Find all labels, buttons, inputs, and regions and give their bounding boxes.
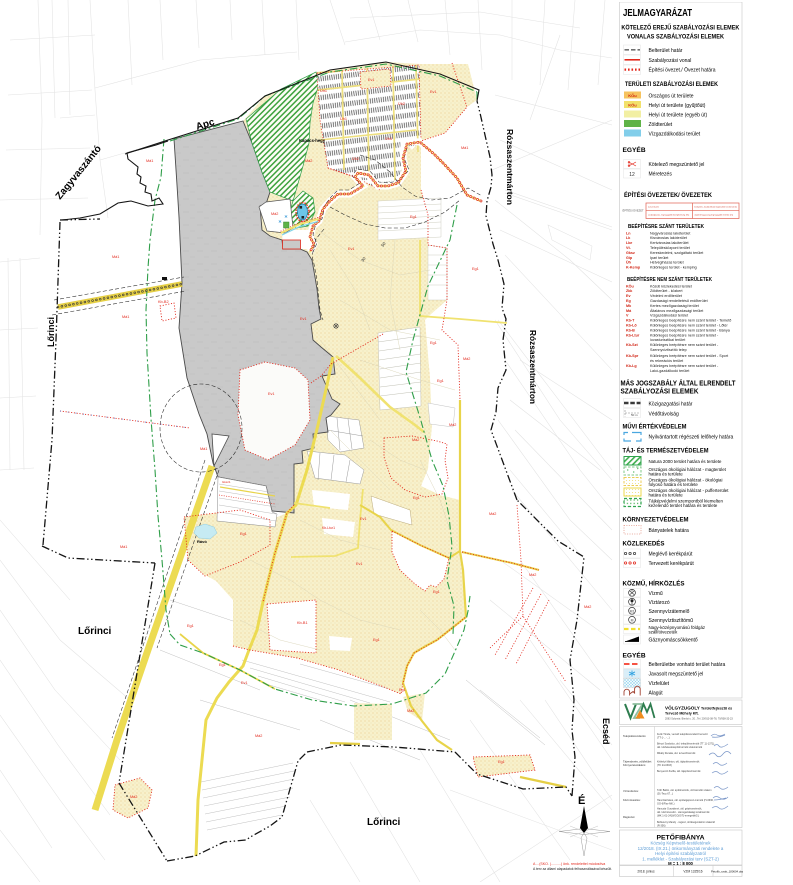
svg-text:Ln: Ln: [626, 231, 631, 235]
svg-text:TERÜLETI SZABÁLYOZÁSI ELEMEK: TERÜLETI SZABÁLYOZÁSI ELEMEK: [625, 81, 719, 88]
svg-text:Má2: Má2: [489, 512, 496, 516]
svg-text:Rózsaszentmárton: Rózsaszentmárton: [505, 129, 515, 205]
svg-text:Tervezett kerékpárút: Tervezett kerékpárút: [649, 561, 695, 567]
svg-text:2083 Solymár, Bimbó u. 20., Te: 2083 Solymár, Bimbó u. 20., Tel: 20/913-…: [665, 718, 733, 721]
svg-text:Má2: Má2: [412, 438, 419, 442]
svg-text:Méretezés: Méretezés: [649, 172, 673, 178]
svg-text:Általános mezőgazdasági terüle: Általános mezőgazdasági terület: [650, 309, 703, 313]
svg-text:Kb-Szt: Kb-Szt: [626, 343, 638, 347]
svg-text:Lőrinci: Lőrinci: [78, 626, 112, 637]
svg-text:Má2: Má2: [529, 573, 536, 577]
svg-text:Kereskedelmi, szolgáltató terü: Kereskedelmi, szolgáltató terület: [650, 251, 703, 255]
svg-text:M = 1 : 8 000: M = 1 : 8 000: [668, 861, 693, 866]
svg-text:Különleges beépítésre nem szán: Különleges beépítésre nem szánt terület …: [650, 319, 731, 323]
svg-text:Ipari terület: Ipari terület: [650, 256, 668, 260]
svg-text:Má1: Má1: [146, 159, 153, 163]
svg-text:Ev1: Ev1: [368, 78, 375, 82]
svg-text:Országos út területe: Országos út területe: [649, 93, 694, 99]
svg-text:Ecséd: Ecséd: [601, 718, 611, 745]
svg-text:határa és területe: határa és területe: [649, 492, 684, 497]
svg-text:Benyeczó Zsófia, okl. tájépíté: Benyeczó Zsófia, okl. tájépítészmérnök: [657, 770, 701, 773]
svg-text:Különleges beépítésre nem szán: Különleges beépítésre nem szánt terület …: [650, 343, 719, 347]
svg-text:Gksz: Gksz: [626, 251, 635, 255]
svg-text:BEÉPÍTÉSRE SZÁNT TERÜLETEK: BEÉPÍTÉSRE SZÁNT TERÜLETEK: [628, 222, 704, 230]
svg-text:Kb-B1: Kb-B1: [297, 621, 308, 625]
svg-text:Üh2: Üh2: [398, 102, 405, 106]
svg-text:JELMAGYARÁZAT: JELMAGYARÁZAT: [623, 6, 692, 19]
svg-text:KÖu: KÖu: [626, 283, 635, 288]
svg-text:EGYÉB: EGYÉB: [623, 145, 646, 154]
svg-text:Hétvégiházas terület: Hétvégiházas terület: [650, 261, 684, 265]
svg-text:Eg1: Eg1: [399, 688, 406, 692]
svg-text:Kertes mezőgazdasági terület: Kertes mezőgazdasági terület: [650, 304, 699, 308]
svg-text:Különleges terület - kemping: Különleges terület - kemping: [650, 266, 697, 270]
svg-text:Településközpont terület: Településközpont terület: [650, 246, 690, 250]
svg-text:KÖZMŰ, HÍRKÖZLÉS: KÖZMŰ, HÍRKÖZLÉS: [623, 580, 685, 588]
svg-text:2018. június: 2018. június: [637, 870, 655, 874]
svg-text:Különleges beépítésre nem szán: Különleges beépítésre nem szánt terület …: [650, 364, 719, 368]
svg-text:Kb-T: Kb-T: [626, 319, 635, 323]
svg-text:Belterületbe vonható terület h: Belterületbe vonható terület határa: [649, 662, 726, 668]
svg-text:Településrendezés:: Településrendezés:: [623, 734, 646, 738]
svg-text:Eg1: Eg1: [410, 215, 417, 219]
svg-text:Víztározó: Víztározó: [649, 600, 670, 606]
svg-text:Ev1: Ev1: [300, 317, 307, 321]
svg-text:Védelmi erdőterület: Védelmi erdőterület: [650, 294, 682, 298]
svg-text:(MK 1-01-2418/GO(O/T)-energeti: (MK 1-01-2418/GO(O/T)-energetikiG.): [657, 814, 699, 817]
svg-text:szabályozás, legnagyobb beépít: szabályozás, legnagyobb beépítettség (%): [648, 214, 689, 217]
svg-text:BEÉPÍTÉSRE NEM SZÁNT TERÜLETEK: BEÉPÍTÉSRE NEM SZÁNT TERÜLETEK: [627, 275, 712, 283]
svg-text:Vízrendezés:: Vízrendezés:: [623, 789, 639, 793]
svg-text:KÖTELEZŐ EREJŰ SZABÁLYOZÁSI EL: KÖTELEZŐ EREJŰ SZABÁLYOZÁSI ELEMEK: [621, 25, 740, 32]
svg-text:Üh: Üh: [626, 260, 632, 265]
svg-text:Közigazgatási határ: Közigazgatási határ: [649, 401, 693, 407]
svg-text:Nagyvárosias lakóterület: Nagyvárosias lakóterület: [650, 231, 690, 235]
svg-text:Eg1: Eg1: [413, 496, 420, 500]
svg-text:Különleges beépítésre nem szán: Különleges beépítésre nem szánt terület …: [650, 333, 719, 337]
svg-text:Zöldterület - közkert: Zöldterület - közkert: [650, 289, 683, 293]
svg-text:Kapacs-hegy: Kapacs-hegy: [299, 138, 326, 143]
svg-text:Kb-Lg: Kb-Lg: [626, 364, 637, 368]
svg-text:Kötelező megszüntető jel: Kötelező megszüntető jel: [649, 162, 705, 168]
svg-text:Eg1: Eg1: [219, 663, 226, 667]
svg-text:Tájrendezés, zöldfelület: Tájrendezés, zöldfelület: [623, 760, 652, 764]
svg-text:épületmagasság legnagyobb érté: épületmagasság legnagyobb értéke (m): [695, 214, 734, 217]
svg-text:övezeti jele: övezeti jele: [648, 206, 660, 209]
svg-text:Üh2: Üh2: [352, 157, 359, 161]
svg-text:Petofib_szab_180604.dwg: Petofib_szab_180604.dwg: [711, 870, 743, 874]
svg-text:Eg1: Eg1: [433, 590, 440, 594]
svg-text:Ev1: Ev1: [356, 562, 363, 566]
svg-text:GO-6/Flsz-MK.): GO-6/Flsz-MK.): [657, 802, 675, 805]
svg-text:Üh3: Üh3: [385, 137, 392, 141]
svg-text:Helyi út területe (egyéb út): Helyi út területe (egyéb út): [649, 112, 708, 118]
svg-text:12/2018. (IX.21.) önkormányzat: 12/2018. (IX.21.) önkormányzati rendelet…: [638, 846, 724, 851]
svg-text:Lőrinci: Lőrinci: [367, 817, 401, 828]
svg-text:Má1: Má1: [122, 315, 129, 319]
svg-text:VZM 1325/16: VZM 1325/16: [683, 870, 702, 874]
svg-text:határa és területe: határa és területe: [649, 471, 684, 476]
svg-text:M1: M1: [630, 609, 635, 613]
svg-text:12: 12: [629, 172, 635, 178]
svg-text:Má1: Má1: [120, 545, 127, 549]
svg-text:Eg1: Eg1: [187, 624, 194, 628]
svg-text:Ev1: Ev1: [241, 681, 248, 685]
svg-text:Alagút: Alagút: [649, 691, 664, 697]
svg-text:Natura 2000 terület határa és: Natura 2000 terület határa és területe: [649, 459, 723, 464]
svg-text:Szennyvíztisztító telep: Szennyvíztisztító telep: [650, 348, 687, 352]
svg-text:Helyi út területe (gyűjtőút): Helyi út területe (gyűjtőút): [649, 103, 706, 109]
svg-text:Má1: Má1: [112, 255, 119, 259]
svg-text:Vízmű: Vízmű: [649, 591, 663, 597]
svg-text:Eg1: Eg1: [373, 638, 380, 642]
svg-text:Kertvárosias lakóterület: Kertvárosias lakóterület: [650, 241, 689, 245]
svg-text:Üh1: Üh1: [320, 89, 327, 93]
svg-text:É: É: [578, 794, 585, 807]
svg-text:beépítés, kialakítható legkise: beépítés, kialakítható legkisebb terület…: [695, 206, 738, 209]
svg-text:VONALAS SZABÁLYOZÁSI ELEMEK: VONALAS SZABÁLYOZÁSI ELEMEK: [627, 34, 725, 41]
svg-text:Má2: Má2: [407, 709, 414, 713]
svg-text:Helyi építési szabályzatról: Helyi építési szabályzatról: [655, 851, 706, 856]
svg-text:Építési övezet./ Övezet határa: Építési övezet./ Övezet határa: [649, 67, 716, 74]
svg-text:MŰVI ÉRTÉKVÉDELEM: MŰVI ÉRTÉKVÉDELEM: [623, 423, 687, 431]
svg-text:Javasolt megszüntető jel: Javasolt megszüntető jel: [649, 672, 704, 678]
svg-text:Kb-Ltur1: Kb-Ltur1: [322, 526, 335, 530]
svg-text:szállítóvezeték: szállítóvezeték: [649, 630, 679, 635]
svg-text:TÁJ- ÉS TERMÉSZETVÉDELEM: TÁJ- ÉS TERMÉSZETVÉDELEM: [623, 447, 709, 455]
svg-text:Kb-B: Kb-B: [626, 328, 635, 332]
svg-text:KÖu: KÖu: [628, 103, 637, 108]
svg-text:Zöldterület: Zöldterület: [649, 122, 673, 128]
svg-text:Eg1: Eg1: [430, 341, 437, 345]
svg-text:Kisvárosias lakóterület: Kisvárosias lakóterület: [650, 236, 687, 240]
svg-text:(01-Tecc-07...): (01-Tecc-07...): [657, 792, 673, 795]
svg-text:Régészet:: Régészet:: [623, 815, 635, 819]
svg-text:Nyilvántartott régészeti lelőh: Nyilvántartott régészeti lelőhely határa: [649, 435, 734, 441]
svg-text:Má2: Má2: [463, 357, 470, 361]
svg-text:Meglévő kerékpárút: Meglévő kerékpárút: [649, 552, 694, 558]
svg-text:K-Kemp: K-Kemp: [626, 266, 641, 270]
svg-text:Különleges beépítésre nem szán: Különleges beépítésre nem szánt terület …: [650, 328, 731, 332]
svg-text:Bobkovny Mandy - régész, örök: Bobkovny Mandy - régész, örökségvédelmi …: [657, 821, 716, 824]
svg-text:Gazdasági rendeltetésű erdőter: Gazdasági rendeltetésű erdőterület: [650, 299, 708, 303]
svg-text:Kb-Lő: Kb-Lő: [626, 324, 637, 328]
svg-text:Má1: Má1: [200, 447, 207, 451]
svg-text:Gksz1: Gksz1: [222, 480, 231, 484]
svg-text:Tervező Műhely Kft.: Tervező Műhely Kft.: [665, 712, 699, 716]
svg-text:Rávó: Rávó: [197, 539, 207, 544]
svg-text:Zkk: Zkk: [626, 289, 633, 293]
svg-text:50 m: 50 m: [631, 413, 638, 417]
svg-text:Gip: Gip: [626, 256, 633, 260]
svg-text:és rekreációs terület: és rekreációs terület: [650, 359, 683, 363]
svg-text:Belterület határ: Belterület határ: [649, 48, 683, 54]
svg-text:Kb-B2: Kb-B2: [158, 300, 169, 304]
svg-text:Mikály Renáta, okl. tervezőmér: Mikály Renáta, okl. tervezőmérnök: [657, 752, 696, 755]
svg-text:Ev1: Ev1: [360, 517, 367, 521]
svg-text:folyosó határa és területe: folyosó határa és területe: [649, 482, 699, 487]
svg-text:Közúti közlekedési terület: Közúti közlekedési terület: [650, 284, 692, 288]
svg-text:Különleges beépítésre nem szán: Különleges beépítésre nem szánt terület …: [650, 324, 728, 328]
svg-text:SZABÁLYOZÁSI ELEMEK: SZABÁLYOZÁSI ELEMEK: [621, 387, 700, 396]
svg-text:(R-356): (R-356): [657, 824, 666, 827]
svg-text:Szabályozási vonal: Szabályozási vonal: [649, 58, 692, 64]
svg-text:Eg: Eg: [626, 299, 631, 303]
svg-text:KÖRNYEZETVÉDELEM: KÖRNYEZETVÉDELEM: [623, 516, 689, 524]
svg-text:lovasturisztikai terület: lovasturisztikai terület: [650, 338, 685, 342]
svg-text:Vt.: Vt.: [626, 246, 631, 250]
svg-text:(TK 24-0303): (TK 24-0303): [657, 764, 672, 767]
svg-text:Környezetvédelem:: Környezetvédelem:: [623, 763, 646, 767]
svg-text:Ev1: Ev1: [430, 90, 437, 94]
svg-text:Közművesítés:: Közművesítés:: [623, 798, 641, 802]
svg-text:Védőtávolság: Védőtávolság: [649, 411, 680, 417]
svg-text:Má2: Má2: [449, 423, 456, 427]
svg-text:KÖu: KÖu: [628, 93, 637, 98]
svg-text:Má2: Má2: [130, 795, 137, 799]
svg-text:Különleges beépítésre nem szán: Különleges beépítésre nem szánt terület …: [650, 354, 728, 358]
svg-text:A ...(SKO. |..........) önk. r: A ...(SKO. |..........) önk. rendelettel…: [533, 862, 605, 866]
svg-text:Kb-Ltur: Kb-Ltur: [626, 333, 640, 337]
svg-text:kezelendő terület határa és te: kezelendő terület határa és területe: [649, 503, 718, 508]
svg-text:M: M: [631, 618, 634, 622]
svg-text:Má2: Má2: [271, 212, 278, 216]
svg-text:Lke: Lke: [626, 241, 632, 245]
svg-text:Má2: Má2: [305, 159, 312, 163]
svg-text:Eg1: Eg1: [498, 760, 505, 764]
svg-text:Má2: Má2: [255, 734, 262, 738]
svg-text:EGYÉB: EGYÉB: [623, 651, 646, 660]
svg-text:Eg1: Eg1: [472, 267, 479, 271]
svg-text:Kb-Spr: Kb-Spr: [626, 354, 639, 358]
svg-text:Má1: Má1: [461, 146, 468, 150]
svg-text:Lakó-gazdálkodó terület: Lakó-gazdálkodó terület: [650, 369, 689, 373]
svg-text:Szennyvízátemelő: Szennyvízátemelő: [649, 609, 690, 615]
svg-text:Üh1: Üh1: [340, 117, 347, 121]
svg-text:Vízgazdálkodási terület: Vízgazdálkodási terület: [649, 131, 701, 137]
svg-text:Gáznyomáscsökkentő: Gáznyomáscsökkentő: [649, 638, 698, 644]
svg-text:Má2: Má2: [584, 605, 591, 609]
svg-text:Szennyvíztisztítómű: Szennyvíztisztítómű: [649, 618, 694, 624]
svg-text:Ev1: Ev1: [268, 392, 275, 396]
svg-text:Ev1: Ev1: [348, 247, 355, 251]
svg-text:Eg1: Eg1: [437, 379, 444, 383]
svg-text:Lőrinci: Lőrinci: [46, 317, 56, 347]
svg-text:Rózsaszentmárton: Rózsaszentmárton: [528, 330, 538, 404]
svg-text:okl. közlekedésépítőmérnök sza: okl. közlekedésépítőmérnök szakmérnök: [657, 746, 703, 749]
svg-text:A terv az állami alapadatok fe: A terv az állami alapadatok felhasználás…: [533, 867, 612, 871]
svg-text:Vízgazdálkodási terület: Vízgazdálkodási terület: [650, 314, 688, 318]
svg-text:Vízfelület: Vízfelület: [649, 681, 670, 687]
svg-text:(TT-1-...-...): (TT-1-...-...): [657, 736, 670, 739]
svg-text:ÉPÍTÉSI ÖVEZETEK/ ÖVEZETEK: ÉPÍTÉSI ÖVEZETEK/ ÖVEZETEK: [624, 190, 712, 199]
svg-text:KÖZLEKEDÉS: KÖZLEKEDÉS: [623, 540, 665, 548]
svg-text:Eg1: Eg1: [240, 532, 247, 536]
svg-text:Bányatelek határa: Bányatelek határa: [649, 528, 690, 534]
svg-text:Község Képviselő-testületének: Község Képviselő-testületének: [650, 841, 711, 846]
